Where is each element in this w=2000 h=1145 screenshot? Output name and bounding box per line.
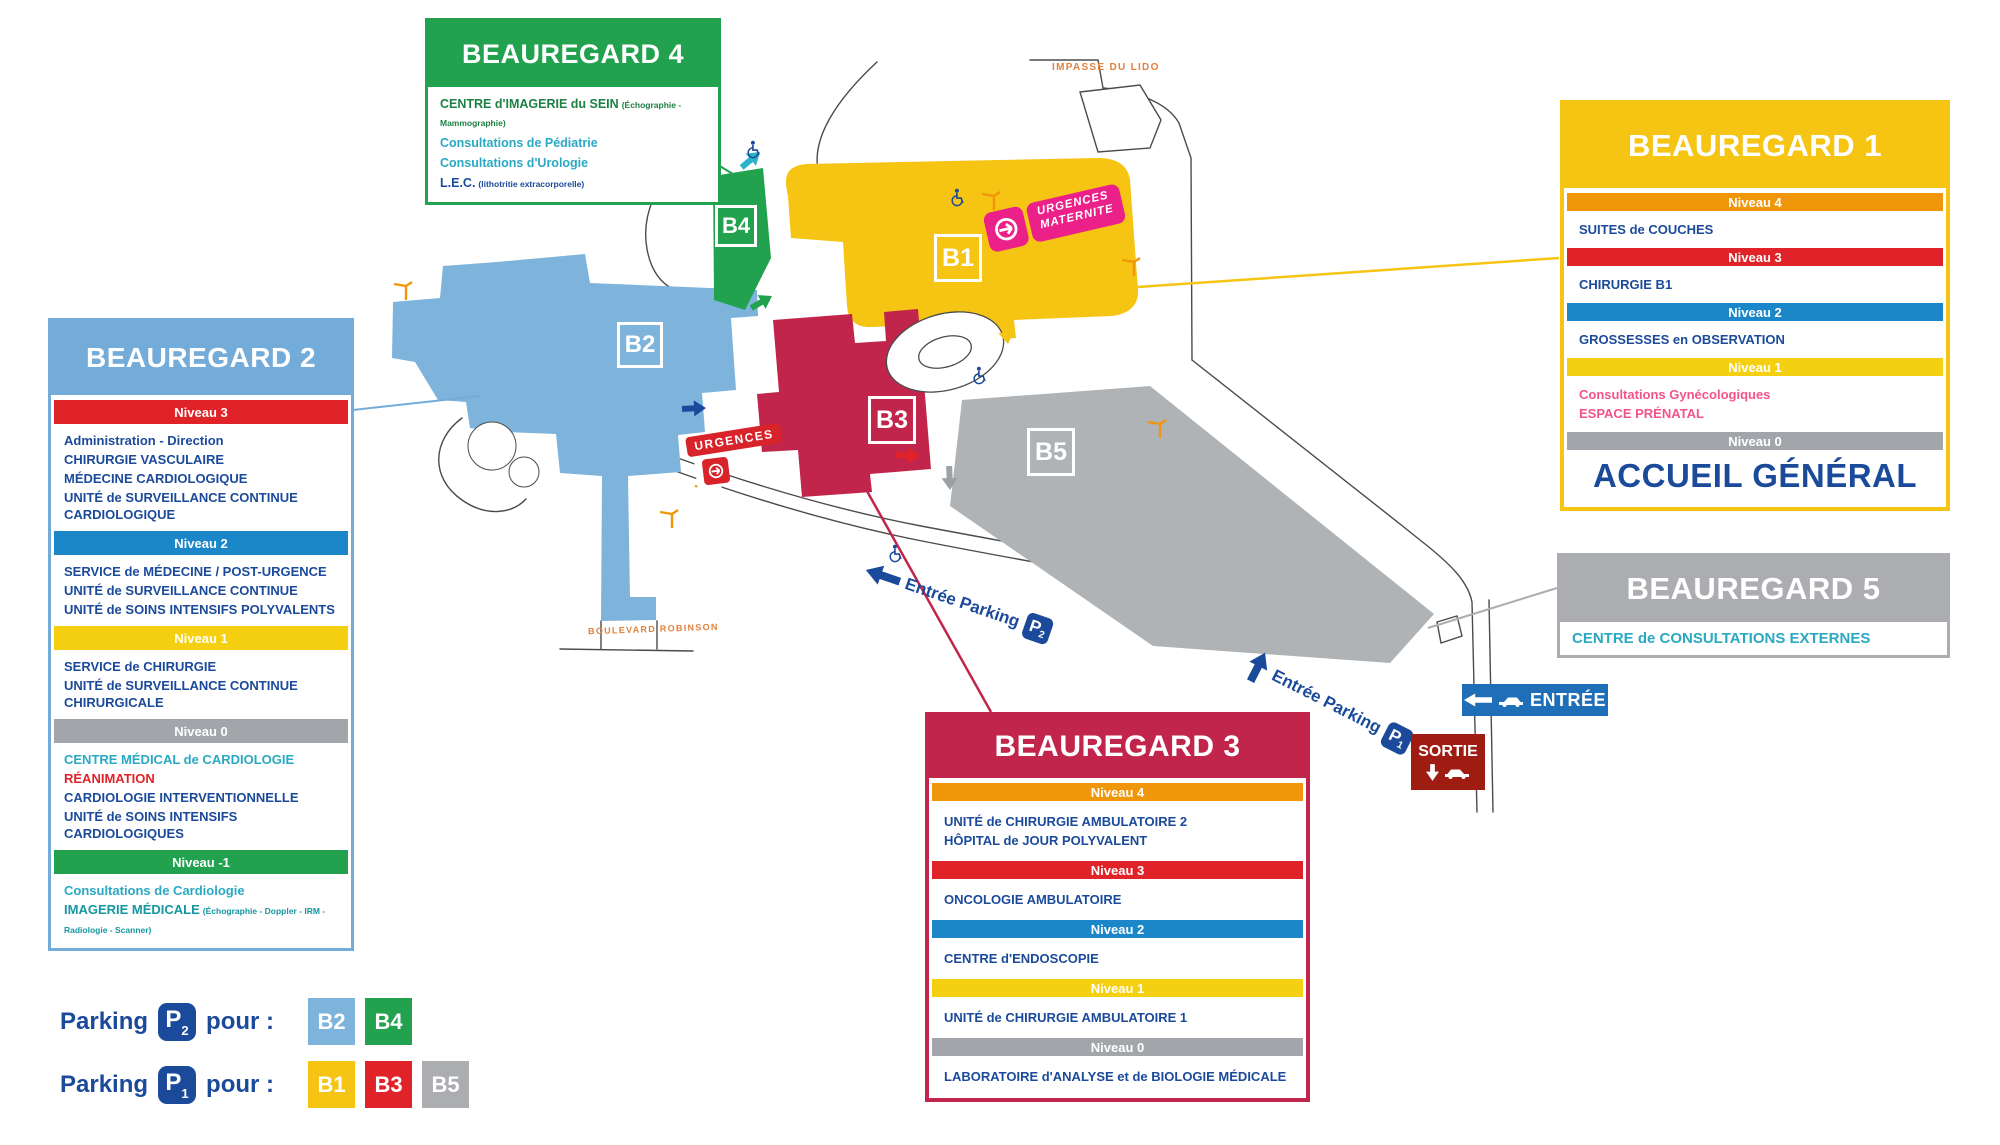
panel-body: Niveau 4 UNITÉ de CHIRURGIE AMBULATOIRE … [929, 778, 1306, 1098]
level-band: Niveau 1 [54, 626, 348, 650]
service-item: Consultations d'Urologie [440, 155, 706, 172]
service-item: LABORATOIRE d'ANALYSE et de BIOLOGIE MÉD… [944, 1068, 1291, 1085]
legend-chip-b5: B5 [422, 1061, 469, 1108]
legend-chip-b4: B4 [365, 998, 412, 1045]
level-items: SERVICE de CHIRURGIE UNITÉ de SURVEILLAN… [54, 652, 348, 717]
p-number: 1 [181, 1087, 188, 1100]
level-items: LABORATOIRE d'ANALYSE et de BIOLOGIE MÉD… [932, 1058, 1303, 1095]
panel-title: BEAUREGARD 2 [51, 321, 351, 395]
sortie-sign-icons [1426, 764, 1470, 781]
panel-beauregard-1: BEAUREGARD 1 Niveau 4 SUITES de COUCHES … [1560, 100, 1950, 511]
service-item: SERVICE de CHIRURGIE [64, 658, 338, 675]
service-text: CENTRE d'IMAGERIE du SEIN [440, 97, 619, 111]
service-item: CHIRURGIE VASCULAIRE [64, 451, 338, 468]
p-number: 2 [181, 1024, 188, 1037]
level-items: Consultations Gynécologiques ESPACE PRÉN… [1567, 378, 1943, 430]
level-band: Niveau 2 [1567, 303, 1943, 321]
accueil-general-label: ACCUEIL GÉNÉRAL [1567, 452, 1943, 504]
parking-p2-icon: P 2 [158, 1003, 196, 1041]
parking-legend-row-p2: Parking P 2 pour : B2 B4 [60, 998, 469, 1045]
street-impasse-du-lido: IMPASSE DU LIDO [1052, 62, 1160, 73]
service-text: IMAGERIE MÉDICALE [64, 902, 200, 917]
service-suffix: (lithotritie extracorporelle) [478, 179, 584, 189]
car-icon [1444, 766, 1470, 779]
wheelchair-icon [888, 544, 903, 568]
level-items: SUITES de COUCHES [1567, 213, 1943, 246]
pour-label: pour : [206, 1071, 274, 1099]
level-band: Niveau 2 [54, 531, 348, 555]
p-letter: P [165, 1071, 181, 1095]
building-label-b1: B1 [934, 234, 982, 282]
level-band: Niveau 2 [932, 920, 1303, 938]
sortie-sign: SORTIE [1411, 734, 1485, 790]
service-item: Consultations de Pédiatrie [440, 135, 706, 152]
parking-label: Parking [60, 1008, 148, 1036]
panel-title: BEAUREGARD 1 [1564, 104, 1946, 188]
service-item: IMAGERIE MÉDICALE(Échographie - Doppler … [64, 901, 338, 939]
entree-sign-text: ENTRÉE [1530, 690, 1606, 711]
level-band: Niveau 1 [932, 979, 1303, 997]
level-items: GROSSESSES en OBSERVATION [1567, 323, 1943, 356]
wheelchair-icon [972, 366, 987, 390]
service-item: UNITÉ de SOINS INTENSIFS POLYVALENTS [64, 601, 338, 618]
service-item: UNITÉ de SURVEILLANCE CONTINUE CHIRURGIC… [64, 677, 338, 711]
service-item: MÉDECINE CARDIOLOGIQUE [64, 470, 338, 487]
level-items: Consultations de Cardiologie IMAGERIE MÉ… [54, 876, 348, 945]
service-item: GROSSESSES en OBSERVATION [1579, 331, 1931, 348]
car-icon [1498, 694, 1524, 707]
service-item: UNITÉ de CHIRURGIE AMBULATOIRE 1 [944, 1009, 1291, 1026]
level-band: Niveau 3 [54, 400, 348, 424]
ramp-shape [509, 457, 539, 487]
level-band: Niveau 1 [1567, 358, 1943, 376]
level-band: Niveau 4 [1567, 193, 1943, 211]
service-item: SUITES de COUCHES [1579, 221, 1931, 238]
service-item: UNITÉ de CHIRURGIE AMBULATOIRE 2 [944, 813, 1291, 830]
panel-title: BEAUREGARD 4 [428, 21, 718, 87]
panel-title: BEAUREGARD 5 [1560, 556, 1947, 622]
parking-legend: Parking P 2 pour : B2 B4 Parking P 1 pou… [60, 998, 469, 1124]
service-item: ESPACE PRÉNATAL [1579, 405, 1931, 422]
service-item: HÔPITAL de JOUR POLYVALENT [944, 832, 1291, 849]
entree-sign: ENTRÉE [1462, 684, 1608, 716]
level-band: Niveau 0 [1567, 432, 1943, 450]
service-item: Administration - Direction [64, 432, 338, 449]
service-item: CHIRURGIE B1 [1579, 276, 1931, 293]
level-items: CENTRE MÉDICAL de CARDIOLOGIE RÉANIMATIO… [54, 745, 348, 848]
level-band: Niveau 0 [932, 1038, 1303, 1056]
panel-beauregard-5: BEAUREGARD 5 CENTRE de CONSULTATIONS EXT… [1557, 553, 1950, 658]
panel-beauregard-3: BEAUREGARD 3 Niveau 4 UNITÉ de CHIRURGIE… [925, 712, 1310, 1102]
building-label-b2: B2 [617, 322, 663, 368]
parking-label: Parking [60, 1071, 148, 1099]
panel-beauregard-2: BEAUREGARD 2 Niveau 3 Administration - D… [48, 318, 354, 951]
wheelchair-icon [950, 188, 965, 212]
sortie-sign-text: SORTIE [1418, 743, 1478, 761]
panel-body: Niveau 4 SUITES de COUCHES Niveau 3 CHIR… [1564, 188, 1946, 507]
panel-services: CENTRE d'IMAGERIE du SEIN(Échographie - … [428, 87, 718, 202]
panel-title: BEAUREGARD 3 [929, 716, 1306, 778]
urgences-circle-arrow-icon [702, 457, 731, 486]
parking-p1-icon: P 1 [158, 1066, 196, 1104]
service-item: CENTRE d'IMAGERIE du SEIN(Échographie - … [440, 96, 706, 132]
service-item: SERVICE de MÉDECINE / POST-URGENCE [64, 563, 338, 580]
level-band: Niveau 0 [54, 719, 348, 743]
service-item: L.E.C.(lithotritie extracorporelle) [440, 175, 706, 193]
level-items: CHIRURGIE B1 [1567, 268, 1943, 301]
down-arrow-icon [1426, 764, 1439, 781]
service-item: CENTRE MÉDICAL de CARDIOLOGIE [64, 751, 338, 768]
service-item: CENTRE de CONSULTATIONS EXTERNES [1572, 630, 1935, 647]
service-item: CARDIOLOGIE INTERVENTIONNELLE [64, 789, 338, 806]
parking-legend-row-p1: Parking P 1 pour : B1 B3 B5 [60, 1061, 469, 1108]
pour-label: pour : [206, 1008, 274, 1036]
service-item: CENTRE d'ENDOSCOPIE [944, 950, 1291, 967]
connector-b2 [353, 396, 480, 410]
service-item: UNITÉ de SOINS INTENSIFS CARDIOLOGIQUES [64, 808, 338, 842]
service-item: UNITÉ de SURVEILLANCE CONTINUE CARDIOLOG… [64, 489, 338, 523]
p-letter: P [165, 1008, 181, 1032]
panel-body: Niveau 3 Administration - Direction CHIR… [51, 395, 351, 948]
service-item: Consultations de Cardiologie [64, 882, 338, 899]
level-items: CENTRE d'ENDOSCOPIE [932, 940, 1303, 977]
connector-b1 [1138, 258, 1559, 287]
legend-chip-b3: B3 [365, 1061, 412, 1108]
level-items: UNITÉ de CHIRURGIE AMBULATOIRE 1 [932, 999, 1303, 1036]
service-item: RÉANIMATION [64, 770, 338, 787]
ramp-shape [468, 422, 516, 470]
service-item: Consultations Gynécologiques [1579, 386, 1931, 403]
building-label-b3: B3 [868, 396, 916, 444]
service-text: L.E.C. [440, 176, 475, 190]
wheelchair-icon [746, 140, 761, 164]
panel-beauregard-4: BEAUREGARD 4 CENTRE d'IMAGERIE du SEIN(É… [425, 18, 721, 205]
connector-b5 [1428, 588, 1557, 628]
level-items: Administration - Direction CHIRURGIE VAS… [54, 426, 348, 529]
level-items: SERVICE de MÉDECINE / POST-URGENCE UNITÉ… [54, 557, 348, 624]
level-items: ONCOLOGIE AMBULATOIRE [932, 881, 1303, 918]
legend-chip-b2: B2 [308, 998, 355, 1045]
level-band: Niveau 3 [932, 861, 1303, 879]
service-item: UNITÉ de SURVEILLANCE CONTINUE [64, 582, 338, 599]
building-label-b5: B5 [1027, 428, 1075, 476]
level-band: Niveau 3 [1567, 248, 1943, 266]
left-arrow-icon [1464, 692, 1492, 708]
building-label-b4: B4 [715, 205, 757, 247]
level-band: Niveau -1 [54, 850, 348, 874]
panel-services: CENTRE de CONSULTATIONS EXTERNES [1560, 622, 1947, 655]
level-band: Niveau 4 [932, 783, 1303, 801]
legend-chip-b1: B1 [308, 1061, 355, 1108]
hospital-campus-map: B2 B4 B1 B3 B5 URGENCES MATERNITE URGENC… [0, 0, 2000, 1145]
level-items: UNITÉ de CHIRURGIE AMBULATOIRE 2 HÔPITAL… [932, 803, 1303, 859]
service-item: ONCOLOGIE AMBULATOIRE [944, 891, 1291, 908]
